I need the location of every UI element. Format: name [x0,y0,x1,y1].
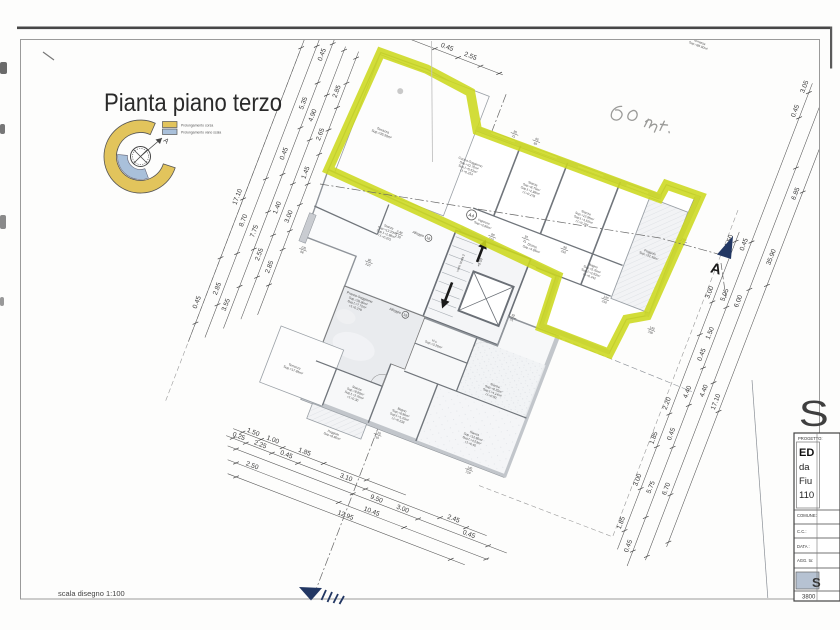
svg-text:AGG. to:: AGG. to: [797,558,813,563]
svg-text:Prolungamento corsa: Prolungamento corsa [181,124,213,128]
svg-text:COMUNE:: COMUNE: [797,513,817,518]
svg-text:Pianta piano terzo: Pianta piano terzo [104,89,282,117]
svg-text:DATA :: DATA : [797,544,810,549]
svg-text:ED: ED [799,447,814,459]
svg-text:S: S [799,393,829,434]
svg-text:S: S [812,575,821,590]
svg-text:Prolungamento vano scala: Prolungamento vano scala [181,131,221,135]
svg-text:C.C.:: C.C.: [797,529,807,534]
svg-text:3800: 3800 [802,595,816,601]
svg-text:110: 110 [799,490,814,501]
svg-text:da: da [799,462,810,473]
svg-text:scala disegno 1:100: scala disegno 1:100 [58,589,125,598]
svg-text:Fiu: Fiu [799,476,812,487]
svg-text:PROGETTO:: PROGETTO: [798,436,823,441]
